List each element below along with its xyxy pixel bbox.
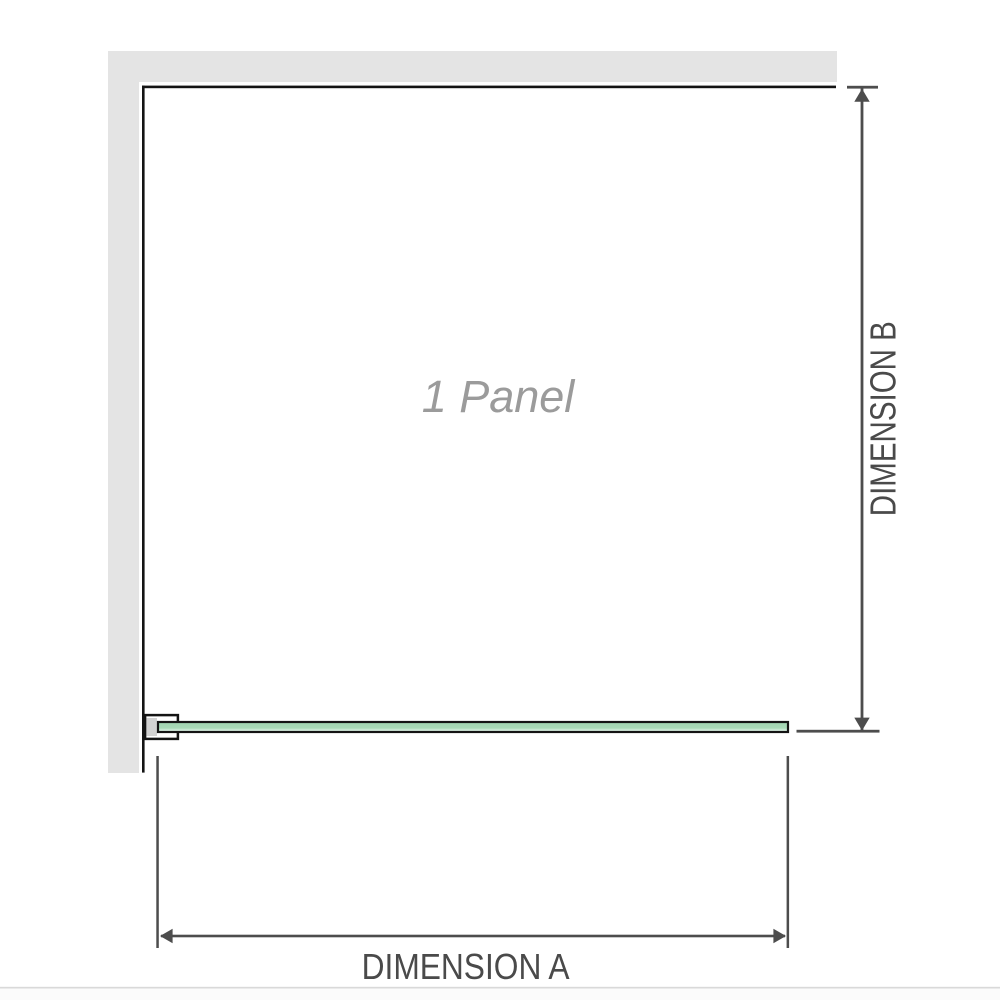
svg-text:1 Panel: 1 Panel: [422, 371, 577, 422]
svg-text:DIMENSION A: DIMENSION A: [362, 946, 570, 987]
svg-text:DIMENSION B: DIMENSION B: [863, 321, 904, 516]
